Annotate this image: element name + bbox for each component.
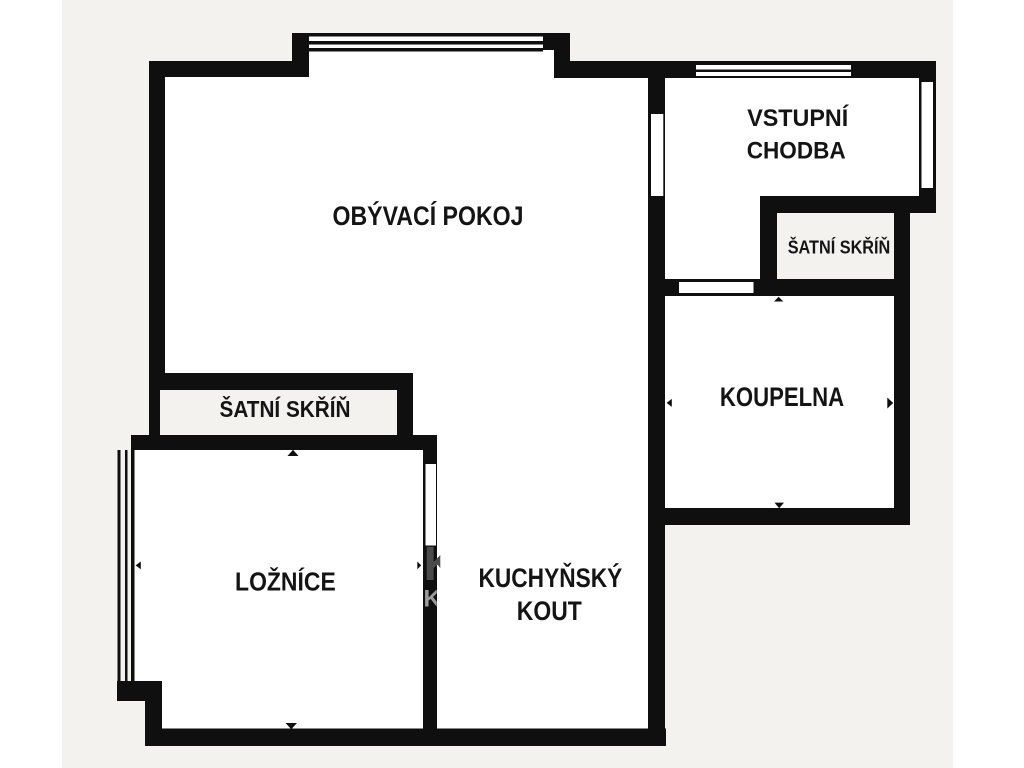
svg-text:VSTUPNÍ: VSTUPNÍ: [747, 104, 849, 132]
svg-text:LOŽNÍCE: LOŽNÍCE: [235, 566, 336, 596]
svg-text:KOUT: KOUT: [517, 596, 582, 626]
svg-text:KOUPELNA: KOUPELNA: [720, 382, 844, 412]
svg-text:ŠATNÍ SKŘÍŇ: ŠATNÍ SKŘÍŇ: [788, 237, 891, 258]
svg-text:KUCHYŇSKÝ: KUCHYŇSKÝ: [479, 562, 623, 593]
svg-text:OBÝVACÍ POKOJ: OBÝVACÍ POKOJ: [333, 200, 524, 231]
svg-text:ŠATNÍ SKŘÍŇ: ŠATNÍ SKŘÍŇ: [220, 395, 351, 422]
svg-text:CHODBA: CHODBA: [747, 138, 846, 165]
